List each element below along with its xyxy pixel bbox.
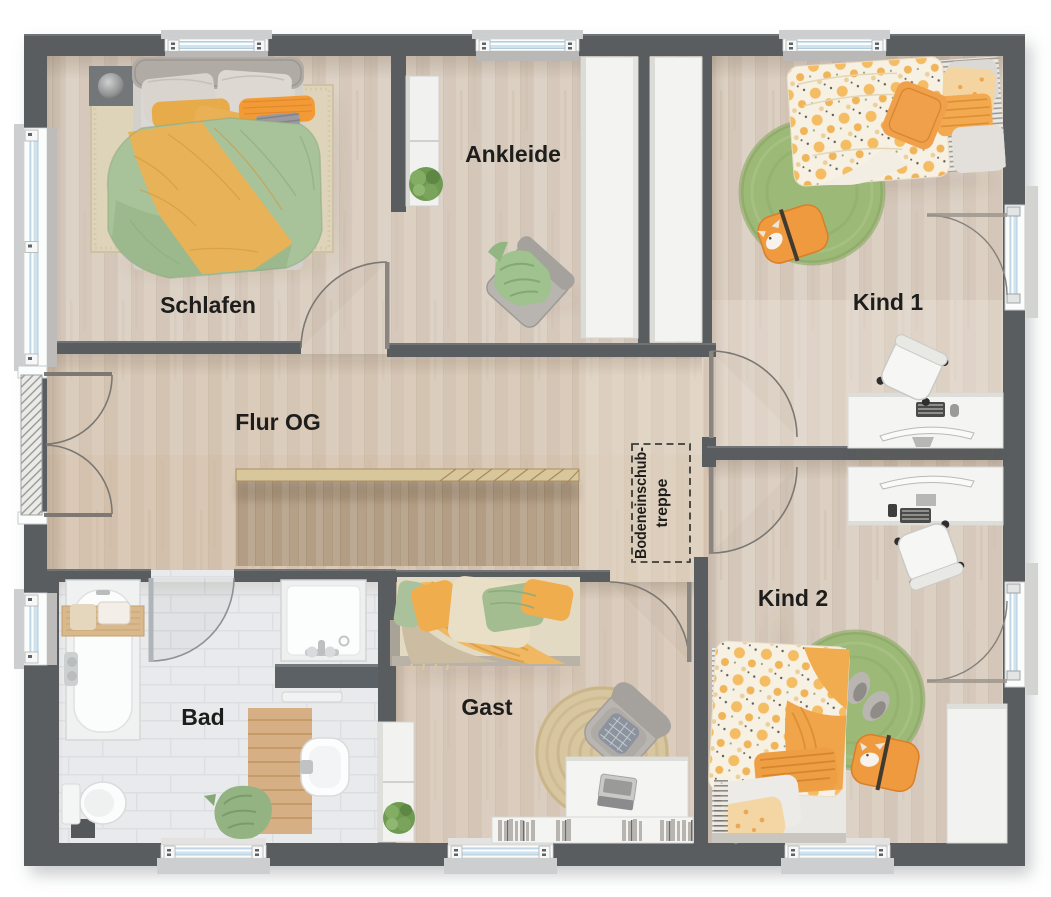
svg-text:treppe: treppe (654, 478, 671, 527)
svg-text:Bodeneinschub-: Bodeneinschub- (633, 447, 650, 559)
svg-text:Kind 1: Kind 1 (853, 289, 923, 315)
svg-text:Gast: Gast (461, 694, 512, 720)
svg-text:Schlafen: Schlafen (160, 292, 256, 318)
svg-text:Ankleide: Ankleide (465, 141, 561, 167)
svg-text:Bad: Bad (181, 704, 224, 730)
svg-text:Flur OG: Flur OG (235, 409, 321, 435)
svg-text:Kind 2: Kind 2 (758, 585, 828, 611)
